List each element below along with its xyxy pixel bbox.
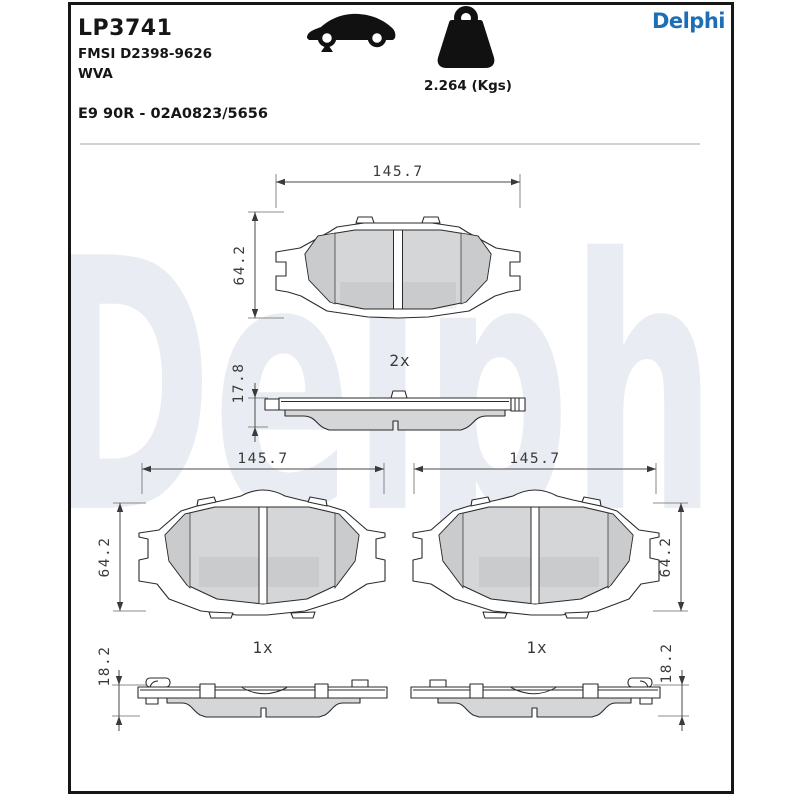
pad-pair-quantity: 2x (389, 351, 410, 370)
drawing-pad-pair-profile: 17.8 (231, 363, 525, 442)
drawing-pad-right-front: 145.7 64.2 1x (413, 451, 688, 657)
pad-left-quantity: 1x (252, 638, 273, 657)
homologation-code: E9 90R - 02A0823/5656 (78, 106, 268, 122)
drawing-pad-left-profile: 18.2 (97, 646, 387, 731)
weight-icon (434, 6, 498, 76)
fmsi-code: FMSI D2398-9626 (78, 46, 212, 62)
datasheet-page: Delphi LP3741 FMSI D2398-9626 WVA E9 90R… (68, 2, 734, 794)
part-number: LP3741 (78, 16, 172, 41)
wva-code: WVA (78, 66, 113, 82)
pad-right-thickness-dim: 18.2 (659, 643, 675, 684)
pad-right-width-dim: 145.7 (509, 451, 560, 467)
pad-pair-width-dim: 145.7 (372, 164, 423, 180)
drawing-pad-right-profile: 18.2 (411, 643, 689, 731)
brand-logo: Delphi (652, 9, 725, 33)
drawing-pad-left-front: 145.7 64.2 1x (97, 451, 385, 657)
pad-right-height-dim: 64.2 (658, 537, 674, 578)
pad-left-thickness-dim: 18.2 (97, 646, 113, 687)
drawing-pad-pair-front: 145.7 64.2 2x (232, 164, 520, 370)
pad-left-height-dim: 64.2 (97, 537, 113, 578)
car-front-axle-icon (304, 10, 398, 54)
weight-value: 2.264 (Kgs) (420, 78, 516, 94)
pad-pair-thickness-dim: 17.8 (231, 363, 247, 404)
pad-left-width-dim: 145.7 (237, 451, 288, 467)
pad-pair-height-dim: 64.2 (232, 245, 248, 286)
pad-right-quantity: 1x (526, 638, 547, 657)
